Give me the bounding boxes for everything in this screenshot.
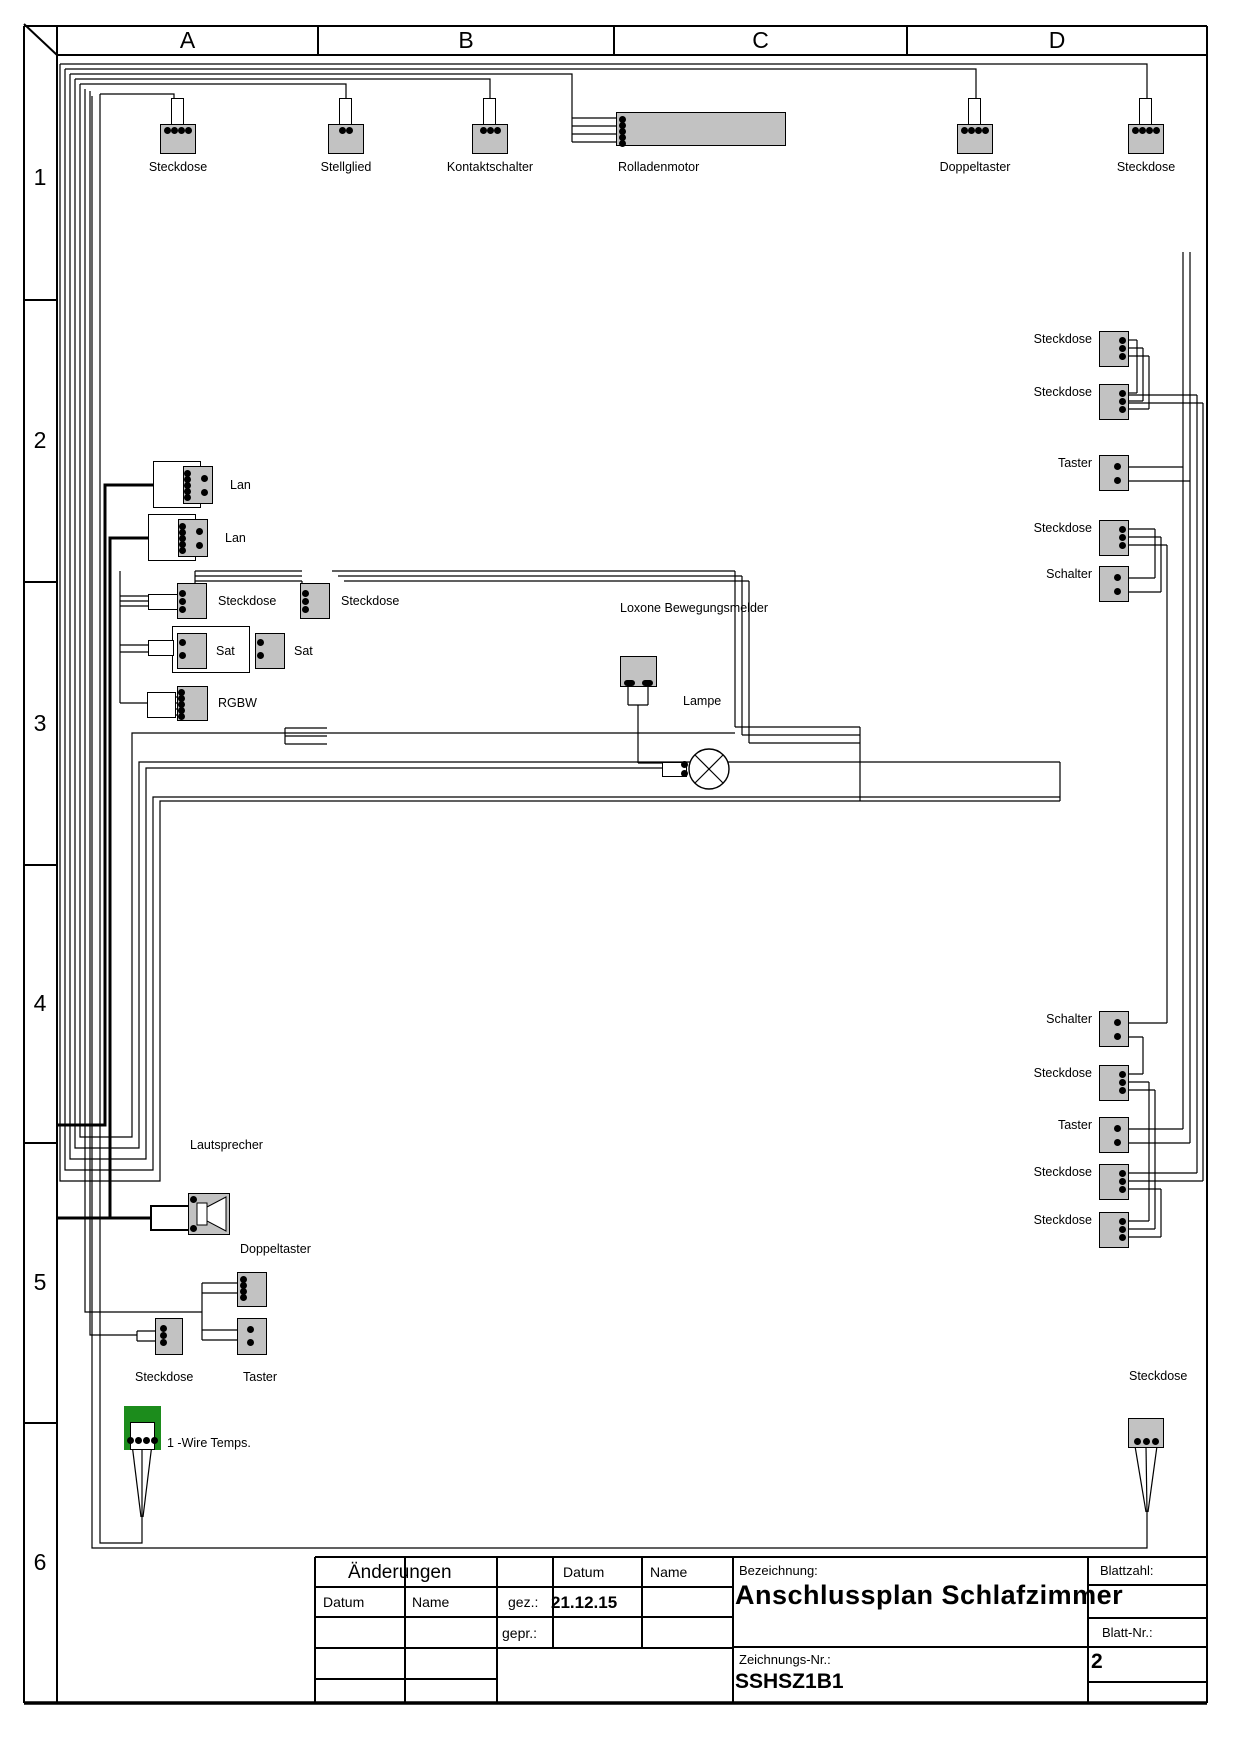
connector-dot — [1114, 1033, 1121, 1040]
grid-column-C: C — [752, 27, 769, 54]
connector-dot — [961, 127, 968, 134]
connector-dot — [302, 606, 309, 613]
component-label: Steckdose — [98, 160, 258, 174]
connector-dot — [179, 639, 186, 646]
connector-dot — [1119, 390, 1126, 397]
component-label: Schalter — [932, 567, 1092, 581]
connector-dot — [1119, 1079, 1126, 1086]
connector-dot — [1119, 1178, 1126, 1185]
connector-dot — [171, 127, 178, 134]
connector-dot — [179, 598, 186, 605]
connector-dot — [1119, 337, 1126, 344]
component-label: Rolladenmotor — [618, 160, 699, 174]
connector-dot — [1119, 406, 1126, 413]
grid-row-2: 2 — [34, 427, 47, 454]
title-blattnr-label: Blatt-Nr.: — [1102, 1625, 1153, 1640]
connector-dot — [302, 598, 309, 605]
connector-dot — [642, 680, 653, 686]
connector-dot — [196, 528, 203, 535]
component-label: Steckdose — [932, 385, 1092, 399]
onewire-notch — [130, 1422, 155, 1450]
grid-row-5: 5 — [34, 1269, 47, 1296]
connector-dot — [201, 475, 208, 482]
pin-stub — [339, 98, 352, 125]
connector-dot — [975, 127, 982, 134]
title-gez-datum: 21.12.15 — [551, 1593, 617, 1613]
connector-dot — [624, 680, 635, 686]
component-box — [1099, 1011, 1129, 1047]
grid-row-1: 1 — [34, 164, 47, 191]
pin-stub — [148, 640, 174, 656]
title-bezeichnung: Anschlussplan Schlafzimmer — [735, 1580, 1123, 1611]
connector-dot — [1119, 1234, 1126, 1241]
connector-dot — [179, 606, 186, 613]
connector-dot — [1143, 1438, 1150, 1445]
connector-dot — [135, 1437, 142, 1444]
connector-dot — [179, 652, 186, 659]
title-gez: gez.: — [508, 1594, 538, 1610]
connector-dot — [1119, 345, 1126, 352]
title-bezeichnung-label: Bezeichnung: — [739, 1563, 818, 1578]
grid-column-B: B — [458, 27, 473, 54]
pin-stub — [147, 692, 176, 718]
connector-dot — [178, 127, 185, 134]
component-label: Lautsprecher — [190, 1138, 263, 1152]
connector-dot — [1114, 574, 1121, 581]
connector-dot — [968, 127, 975, 134]
title-zeichnungs-nr: SSHSZ1B1 — [735, 1670, 844, 1694]
speaker-icon — [0, 0, 1240, 1754]
title-datum-mid: Datum — [563, 1564, 604, 1580]
component-label: Sat — [216, 644, 235, 658]
connector-dot — [346, 127, 353, 134]
connector-dot — [1119, 1170, 1126, 1177]
connector-dot — [982, 127, 989, 134]
connector-dot — [1119, 1226, 1126, 1233]
title-zeichnungs-label: Zeichnungs-Nr.: — [739, 1652, 831, 1667]
component-label: Doppeltaster — [240, 1242, 311, 1256]
component-label: Steckdose — [218, 594, 276, 608]
connector-dot — [1114, 1125, 1121, 1132]
title-blattnr-value: 2 — [1091, 1650, 1103, 1674]
connector-dot — [179, 590, 186, 597]
connector-dot — [1153, 127, 1160, 134]
component-label: RGBW — [218, 696, 257, 710]
connector-dot — [164, 127, 171, 134]
component-label: Taster — [243, 1370, 277, 1384]
component-label: Steckdose — [932, 1066, 1092, 1080]
connector-dot — [160, 1325, 167, 1332]
connector-dot — [201, 489, 208, 496]
pin-stub — [968, 98, 981, 125]
connector-dot — [487, 127, 494, 134]
connector-dot — [1146, 127, 1153, 134]
component-label: Steckdose — [341, 594, 399, 608]
component-label: Sat — [294, 644, 313, 658]
connector-dot — [240, 1294, 247, 1301]
connector-dot — [196, 542, 203, 549]
connector-dot — [1119, 542, 1126, 549]
component-label: 1 -Wire Temps. — [167, 1436, 251, 1450]
grid-row-3: 3 — [34, 710, 47, 737]
grid-column-A: A — [180, 27, 195, 54]
component-label: Steckdose — [932, 332, 1092, 346]
connector-dot — [179, 547, 186, 554]
component-label: Steckdose — [1129, 1369, 1187, 1383]
component-label: Schalter — [932, 1012, 1092, 1026]
connector-dot — [178, 713, 185, 720]
component-label: Taster — [932, 1118, 1092, 1132]
component-label: Steckdose — [932, 1165, 1092, 1179]
connector-dot — [1119, 1071, 1126, 1078]
pin-stub — [150, 1205, 190, 1231]
title-aenderungen: Änderungen — [348, 1562, 452, 1584]
connector-dot — [1119, 1186, 1126, 1193]
connector-dot — [190, 1225, 197, 1232]
component-label: Lan — [225, 531, 246, 545]
component-label: Lan — [230, 478, 251, 492]
title-blattzahl-label: Blattzahl: — [1100, 1563, 1153, 1578]
component-label: Kontaktschalter — [410, 160, 570, 174]
connector-dot — [1152, 1438, 1159, 1445]
pin-stub — [148, 594, 178, 610]
component-label: Steckdose — [932, 521, 1092, 535]
connector-dot — [1114, 1019, 1121, 1026]
component-box — [1099, 566, 1129, 602]
connector-dot — [160, 1332, 167, 1339]
connector-dot — [1119, 534, 1126, 541]
connector-dot — [619, 140, 626, 147]
connector-dot — [1114, 463, 1121, 470]
connector-dot — [302, 590, 309, 597]
component-box — [1099, 1117, 1129, 1153]
component-box — [1099, 455, 1129, 491]
connector-dot — [1132, 127, 1139, 134]
connector-dot — [257, 652, 264, 659]
connector-dot — [1114, 1139, 1121, 1146]
connector-dot — [127, 1437, 134, 1444]
drawing-sheet: ABCD123456 SteckdoseStellgliedKontaktsch… — [0, 0, 1240, 1754]
component-label: Steckdose — [1066, 160, 1226, 174]
connector-dot — [1119, 398, 1126, 405]
title-name-left: Name — [412, 1594, 449, 1610]
connector-dot — [185, 127, 192, 134]
component-label: Steckdose — [932, 1213, 1092, 1227]
connector-dot — [494, 127, 501, 134]
component-box — [616, 112, 786, 146]
connector-dot — [1114, 588, 1121, 595]
lamp-icon — [0, 0, 1240, 1754]
component-label: Taster — [932, 456, 1092, 470]
connector-dot — [143, 1437, 150, 1444]
wire-layer — [0, 0, 1240, 1754]
connector-dot — [1134, 1438, 1141, 1445]
component-label: Steckdose — [135, 1370, 193, 1384]
connector-dot — [184, 494, 191, 501]
component-label: Stellglied — [266, 160, 426, 174]
connector-dot — [1114, 477, 1121, 484]
component-box — [237, 1318, 267, 1355]
connector-dot — [1119, 1218, 1126, 1225]
connector-dot — [160, 1339, 167, 1346]
connector-dot — [247, 1326, 254, 1333]
title-datum-left: Datum — [323, 1594, 364, 1610]
title-gepr: gepr.: — [502, 1625, 537, 1641]
grid-row-6: 6 — [34, 1549, 47, 1576]
connector-dot — [681, 770, 688, 777]
connector-dot — [151, 1437, 158, 1444]
connector-dot — [339, 127, 346, 134]
grid-column-D: D — [1049, 27, 1066, 54]
connector-dot — [681, 761, 688, 768]
component-label: Loxone Bewegungsmelder — [620, 601, 768, 615]
pin-stub — [171, 98, 184, 125]
grid-row-4: 4 — [34, 990, 47, 1017]
pin-stub — [483, 98, 496, 125]
connector-dot — [480, 127, 487, 134]
connector-dot — [257, 639, 264, 646]
component-label: Doppeltaster — [895, 160, 1055, 174]
pin-stub — [1139, 98, 1152, 125]
connector-dot — [1119, 1087, 1126, 1094]
connector-dot — [1139, 127, 1146, 134]
connector-dot — [190, 1196, 197, 1203]
title-name-mid: Name — [650, 1564, 687, 1580]
connector-dot — [1119, 353, 1126, 360]
connector-dot — [1119, 526, 1126, 533]
component-label: Lampe — [683, 694, 721, 708]
connector-dot — [247, 1339, 254, 1346]
